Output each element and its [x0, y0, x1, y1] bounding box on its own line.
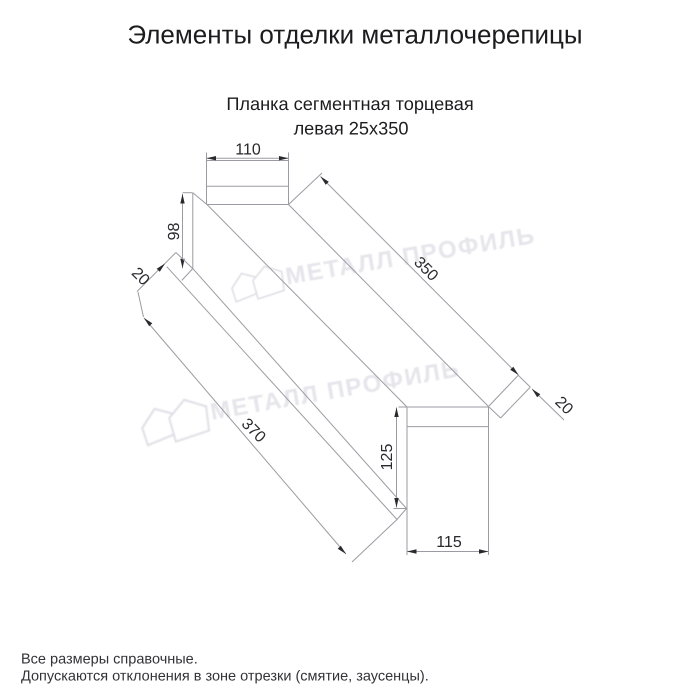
svg-text:115: 115: [436, 534, 462, 551]
svg-text:98: 98: [166, 223, 183, 241]
svg-text:МЕТАЛЛ ПРОФИЛЬ: МЕТАЛЛ ПРОФИЛЬ: [284, 222, 538, 290]
svg-text:левая 25х350: левая 25х350: [294, 119, 409, 139]
svg-text:Все размеры справочные.: Все размеры справочные.: [21, 652, 198, 668]
svg-text:20: 20: [128, 265, 153, 290]
svg-text:Элементы отделки металлочерепи: Элементы отделки металлочерепицы: [127, 20, 582, 50]
svg-text:Допускаются отклонения в зоне: Допускаются отклонения в зоне отрезки (с…: [21, 669, 429, 685]
svg-text:МЕТАЛЛ ПРОФИЛЬ: МЕТАЛЛ ПРОФИЛЬ: [208, 355, 462, 426]
svg-text:110: 110: [235, 142, 261, 159]
svg-text:125: 125: [379, 444, 396, 471]
svg-text:20: 20: [551, 394, 576, 419]
svg-text:Планка сегментная торцевая: Планка сегментная торцевая: [226, 94, 473, 114]
